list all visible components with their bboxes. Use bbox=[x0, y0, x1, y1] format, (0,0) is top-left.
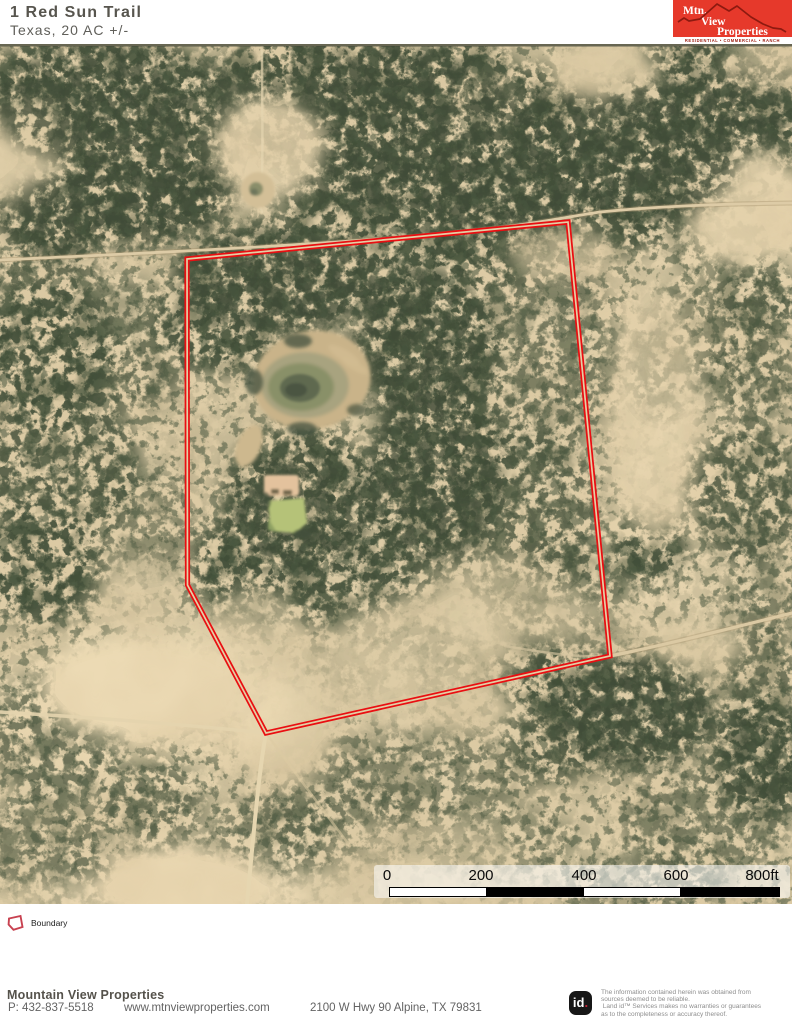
svg-text:Properties: Properties bbox=[717, 26, 768, 37]
